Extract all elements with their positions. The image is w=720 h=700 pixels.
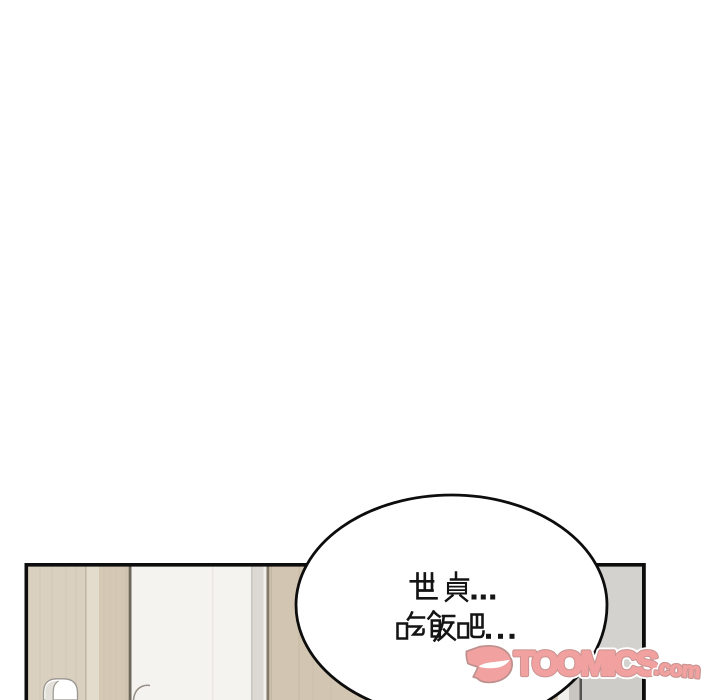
svg-text:.com: .com [653, 656, 701, 683]
svg-text:TOOMICS: TOOMICS [514, 645, 658, 683]
